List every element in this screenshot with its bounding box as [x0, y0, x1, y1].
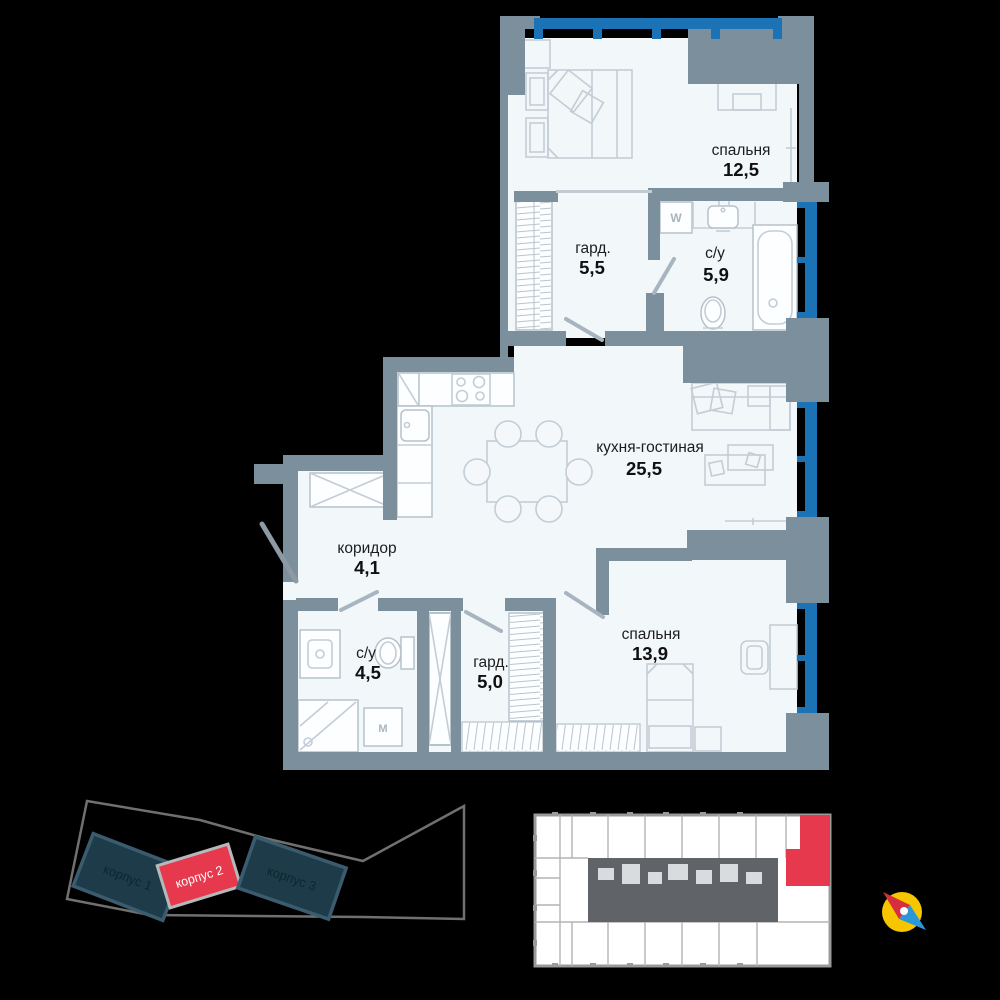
room-label-kitchen: кухня-гостиная [596, 439, 704, 456]
room-label-wardrobe1: гард. [575, 240, 611, 257]
kitchen-sink [401, 410, 429, 441]
window-bathroom [797, 202, 817, 318]
room-label-bedroom1: спальня [712, 142, 771, 159]
room-area-corridor: 4,1 [354, 557, 380, 578]
room-area-bathroom2: 4,5 [355, 662, 381, 683]
room-label-wardrobe2: гард. [473, 654, 509, 671]
window-living [797, 402, 817, 517]
window-bedroom2 [797, 603, 817, 713]
room-area-wardrobe1: 5,5 [579, 257, 605, 278]
wardrobe-shelving [516, 198, 552, 330]
bathtub [753, 225, 797, 330]
compass-icon [882, 892, 926, 932]
room-area-kitchen: 25,5 [626, 458, 662, 479]
washer-label: W [670, 211, 682, 225]
floor-overview [533, 812, 830, 967]
wardrobe2-shelving [509, 613, 545, 721]
washer-compact-label: M [378, 723, 387, 735]
room-label-bedroom2: спальня [622, 626, 681, 643]
room-area-bathroom1: 5,9 [703, 264, 729, 285]
shower [298, 700, 358, 752]
vent-box [310, 473, 390, 507]
apartment-plan: спальня 12,5 гард. 5,5 с/у 5,9 кухня-гос… [254, 16, 829, 770]
plan-canvas: спальня 12,5 гард. 5,5 с/у 5,9 кухня-гос… [0, 0, 1000, 1000]
small-bath-sink [300, 630, 340, 678]
floorplan-screenshot: спальня 12,5 гард. 5,5 с/у 5,9 кухня-гос… [0, 0, 1000, 1000]
building-3[interactable]: корпус 3 [238, 837, 346, 919]
shaft-box [429, 613, 451, 745]
room-label-corridor: коридор [337, 540, 396, 557]
room-label-bathroom1: с/у [705, 245, 725, 262]
room-label-bathroom2: с/у [356, 645, 376, 662]
room-area-bedroom1: 12,5 [723, 159, 759, 180]
site-plan: корпус 1 корпус 2 корпус 3 [67, 801, 464, 920]
room-area-bedroom2: 13,9 [632, 643, 668, 664]
toilet [701, 297, 725, 329]
building-2-selected[interactable]: корпус 2 [157, 844, 241, 908]
room-area-wardrobe2: 5,0 [477, 671, 503, 692]
compass-pivot [900, 907, 908, 915]
